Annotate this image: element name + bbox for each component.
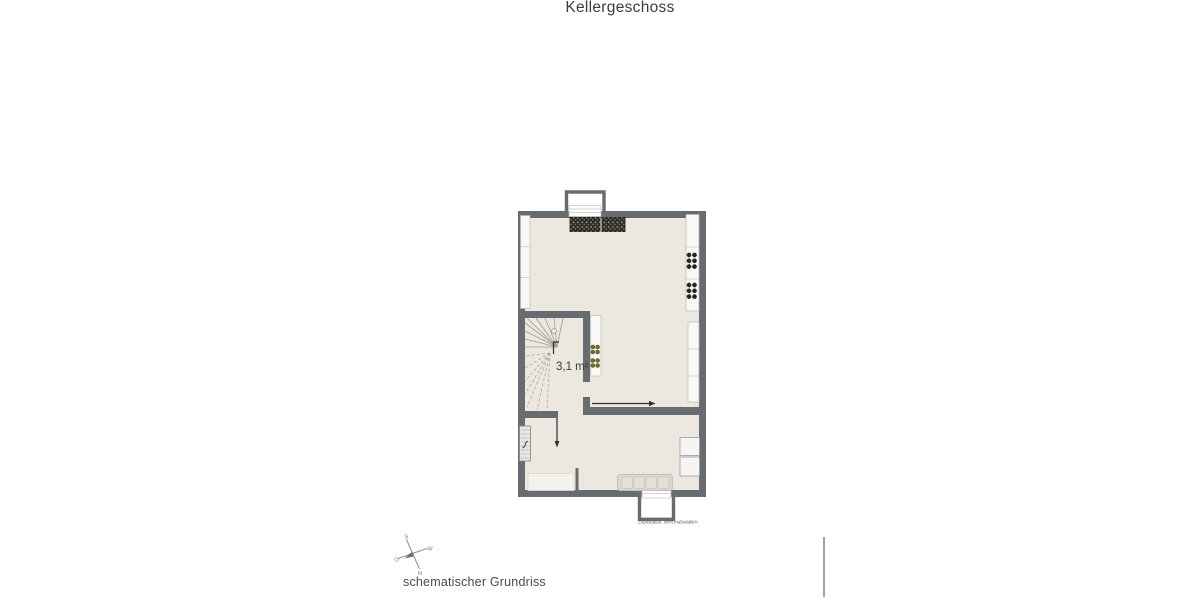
page-title: Kellergeschoss xyxy=(0,0,1200,17)
outer-walls xyxy=(518,211,706,497)
shelf-left xyxy=(521,216,531,309)
shelf-right-lower xyxy=(688,322,699,402)
divider-line xyxy=(823,537,825,597)
storage-racks xyxy=(570,218,625,232)
area-label: 3,1 m² xyxy=(556,361,589,373)
compass-needle xyxy=(405,552,414,559)
radiator-icon xyxy=(520,426,531,461)
sofa xyxy=(618,475,673,491)
compass-west-label: W xyxy=(427,547,433,553)
plan-caption: schematischer Grundriss xyxy=(403,575,546,589)
storage-boxes xyxy=(680,438,700,477)
floor-plan: 3,1 m² xyxy=(505,185,720,530)
light-shaft-bottom xyxy=(640,496,674,519)
window-top xyxy=(569,206,601,217)
compass-south-label: S xyxy=(405,535,409,541)
compass-rose: S W O N xyxy=(390,532,435,576)
floor-unit xyxy=(528,474,574,491)
disclaimer-label: Exposéplan, nicht maßstäblich xyxy=(638,520,698,525)
compass-east-label: O xyxy=(394,558,399,564)
